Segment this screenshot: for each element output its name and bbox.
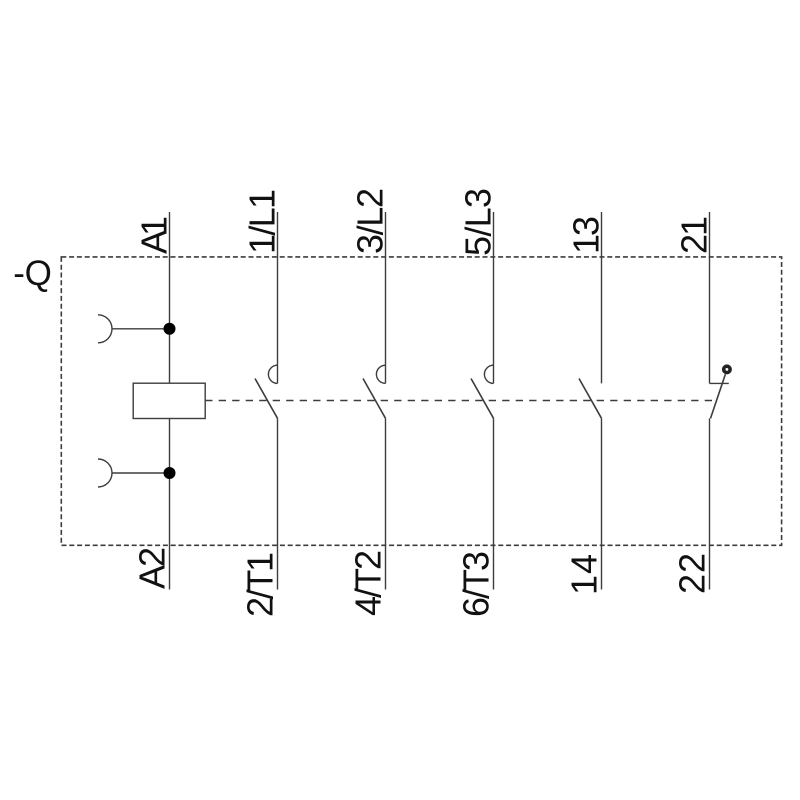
svg-text:3/L2: 3/L2 — [350, 188, 391, 254]
svg-text:1/L1: 1/L1 — [242, 189, 283, 254]
svg-text:6/T3: 6/T3 — [456, 551, 497, 617]
svg-text:2/T1: 2/T1 — [240, 552, 281, 617]
svg-text:4/T2: 4/T2 — [348, 550, 389, 616]
svg-text:21: 21 — [674, 216, 715, 254]
svg-text:A2: A2 — [132, 547, 173, 589]
svg-text:-Q: -Q — [13, 254, 52, 293]
svg-text:14: 14 — [564, 554, 605, 595]
svg-text:13: 13 — [566, 216, 607, 254]
svg-text:A1: A1 — [134, 216, 175, 254]
svg-text:5/L3: 5/L3 — [458, 188, 499, 256]
svg-text:22: 22 — [672, 553, 713, 594]
